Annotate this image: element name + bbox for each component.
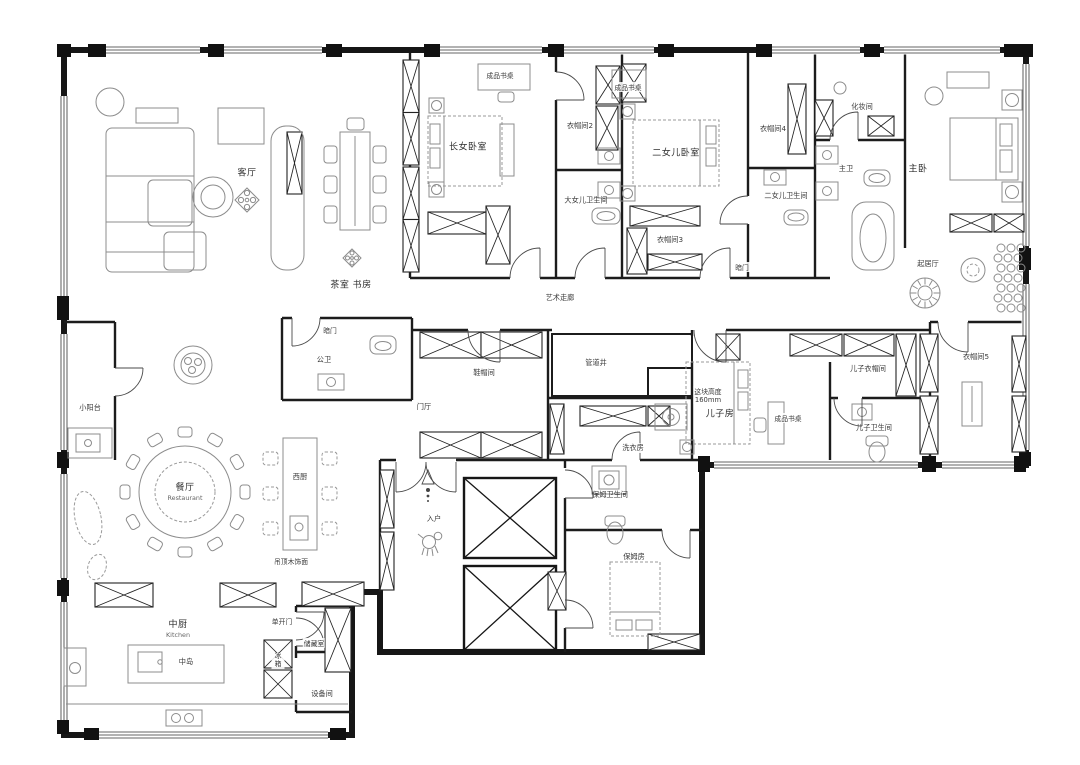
sitting-room-plants [910,244,1025,312]
west-kitchen-island [263,438,337,550]
wardrobe-cabinet-hatches [95,60,1026,698]
cloakroom5-island [962,382,982,426]
floor-plan-canvas [0,0,1080,765]
kitchen-furniture [64,645,348,726]
door-swings [115,72,968,646]
dog-sketch [418,532,442,556]
nanny-suite-furniture [592,466,660,636]
tea-study-furniture [324,118,386,267]
living-room-furniture [96,88,304,272]
balcony-fixture [68,428,112,458]
entry-motif [418,470,442,556]
elevator-shafts [464,478,556,650]
compass-motif-living [235,188,259,212]
public-bath-fixtures [318,336,396,390]
compass-motif-tea [343,249,361,267]
pipe-shaft-walls [552,334,692,396]
floor-plan: 客厅 茶室 书房 艺术走廊 长女卧室 衣帽间2 大女儿卫生间 二女儿卧室 衣帽间… [0,0,1080,765]
